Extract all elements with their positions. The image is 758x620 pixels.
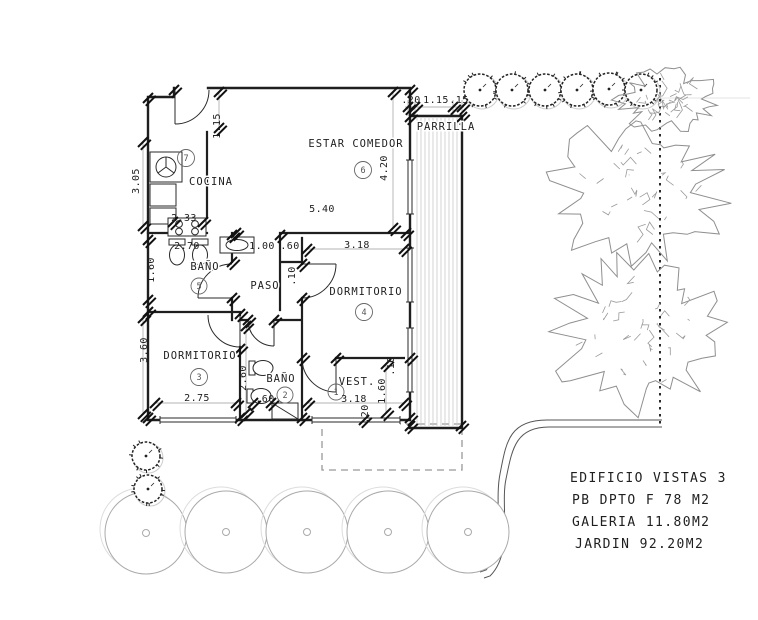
tree-canopy [347,491,429,573]
room-number-6: 6 [360,166,365,176]
shrub-spike [493,93,496,94]
shrub-spike [472,73,473,76]
shrub-spike [537,73,538,76]
room-number-5: 5 [196,282,201,292]
dim-paso-100: 1.00 [249,241,275,252]
foliage-detail [603,211,611,215]
tree-canopy [105,492,187,574]
foliage-detail [623,335,631,339]
room-number-2: 2 [282,391,287,401]
shrub-spike [157,465,159,467]
dim-top-20: .20 [401,95,420,106]
room-number-1: 1 [333,388,338,398]
dim-dorm4-width: 3.18 [344,240,370,251]
foliage-detail [637,152,642,154]
foliage-detail [621,157,637,165]
foliage-detail [614,163,620,169]
foliage-outline [549,253,728,418]
dim-dorm3-width: 2.75 [184,393,210,404]
shrub-center [479,89,482,92]
foliage-detail [613,312,625,321]
foliage-detail [675,86,681,93]
shrub-spike [131,485,134,486]
shrub-spike [584,104,585,107]
foliage-detail [688,319,690,321]
foliage-detail [666,176,673,186]
shrub-center [511,89,514,92]
shrub-spike [580,71,581,74]
foliage-detail [676,333,685,339]
foliage-detail [680,83,692,95]
foliage-detail [652,109,659,121]
dim-bano5-height: 1.60 [146,257,157,283]
foliage-detail [648,110,652,120]
shrub-spike [616,103,617,106]
foliage-detail [622,292,632,301]
dim-cocina-opening: 1.15 [212,113,223,139]
tree-canopy [185,491,267,573]
foliage-detail [625,149,629,155]
room-label-estar: ESTAR COMEDOR [308,138,403,150]
room-label-bano5: BAÑO [190,260,219,273]
window-mask [405,160,415,214]
dim-dorm3-height: 3.60 [139,337,150,363]
shrub-center [147,488,150,491]
foliage-detail [626,170,634,178]
foliage-detail [657,324,669,337]
foliage-detail [597,179,604,184]
dim-paso-10: .10 [287,266,298,285]
dim-bano2-height: 2.60 [238,365,249,391]
shrub-spike [652,102,654,104]
window-mask [160,415,236,425]
dim-top-15: .15 [449,95,468,106]
title-line-1: EDIFICIO VISTAS 3 [570,471,727,486]
foliage-detail [576,342,583,345]
dim-bano2-60: .60 [255,394,274,405]
dimension-ticks [138,85,470,434]
shrub-center [145,455,148,458]
title-line-3: GALERIA 11.80M2 [572,515,710,530]
room-label-cocina: COCINA [189,176,233,188]
foliage-detail [609,301,622,307]
dim-vest-width: 3.18 [341,394,367,405]
tree-canopy [427,491,509,573]
foliage-detail [646,222,654,235]
room-label-bano2: BAÑO [266,372,295,385]
foliage-detail [661,311,670,317]
room-number-7: 7 [183,154,188,164]
foliage-outline [546,121,731,266]
shrub-spike [131,491,134,492]
foliage-detail [664,217,666,220]
foliage-detail [640,193,650,205]
foliage-detail [665,112,670,116]
title-line-4: JARDIN 92.20M2 [575,537,704,552]
dim-vest-height: 1.60 [377,378,388,404]
foliage-detail [580,174,586,179]
foliage-detail [618,145,622,152]
shrub-spike [523,101,525,103]
dim-cocina-width: 2.33 [171,213,197,224]
foliage-detail [628,276,635,284]
shrub-spike [564,77,566,79]
foliage-detail [661,173,665,176]
foliage-detail [642,325,649,330]
shrub-spike [133,445,135,447]
foliage-detail [696,185,702,191]
foliage-detail [652,192,657,198]
kitchen-cabinet [150,184,176,206]
shrub-spike [559,99,562,101]
dim-estar-width: 5.40 [309,204,335,215]
foliage-detail [641,319,643,329]
floor-plan-canvas: COCINA ESTAR COMEDOR BAÑO PASO DORMITORI… [0,0,758,620]
room-labels: COCINA ESTAR COMEDOR BAÑO PASO DORMITORI… [163,121,475,388]
foliage-detail [670,94,677,97]
floor-plan-page: COCINA ESTAR COMEDOR BAÑO PASO DORMITORI… [0,0,758,620]
shrub-spike [553,104,554,107]
foliage-detail [643,361,646,366]
room-label-parrilla: PARRILLA [417,121,476,133]
foliage-detail [687,77,698,89]
foliage-detail [681,190,687,199]
dim-bano5-width: 2.70 [174,241,200,252]
shrub-spike [599,73,601,76]
foliage-detail [658,327,664,331]
foliage-detail [637,224,646,242]
tree-canopy [266,491,348,573]
galeria-dashed-outline [322,424,462,470]
window-mask [405,248,415,302]
foliage-detail [644,211,659,220]
dim-paso-60: .60 [280,241,299,252]
shrub-spike [648,73,649,76]
shrub-spike [463,81,466,82]
dim-cocina-height: 3.05 [131,168,142,194]
shrub-center [608,88,611,91]
foliage-detail [611,204,617,207]
vanity-basin [226,240,248,251]
shrub-spike [605,105,606,108]
room-number-4: 4 [361,308,366,318]
title-line-2: PB DPTO F 78 M2 [572,493,710,508]
room-label-paso: PASO [250,280,279,292]
title-block: EDIFICIO VISTAS 3 PB DPTO F 78 M2 GALERI… [570,471,727,552]
room-number-3: 3 [196,373,201,383]
foliage-detail [596,353,603,357]
foliage-detail [655,302,660,309]
shrub-center [640,89,643,92]
foliage-detail [627,197,632,200]
shrub-spike [515,71,516,74]
shrub-spike [140,474,141,477]
foliage-detail [662,380,667,383]
room-label-vest: VEST. [339,376,376,388]
dim-vest-20: .20 [360,404,371,423]
shrub-spike [553,74,555,77]
foliage-detail [648,330,654,347]
shrub-spike [139,441,140,444]
foliage-detail [668,348,670,356]
foliage-detail [603,306,606,313]
foliage-detail [645,148,652,154]
dim-top-115: 1.15 [423,95,449,106]
shrub-center [576,89,579,92]
room-label-dorm4: DORMITORIO [329,286,402,298]
shrub-spike [136,477,138,479]
foliage-detail [603,313,608,320]
stove-burner [176,228,183,235]
parrilla-deck-hatch [417,118,457,426]
foliage-detail [684,104,693,111]
stove-burner [192,228,199,235]
room-label-dorm3: DORMITORIO [163,350,236,362]
foliage-detail [621,369,626,375]
shrub-spike [468,75,470,77]
dim-vest-10: .10 [386,356,397,375]
dim-estar-height: 4.20 [379,155,390,181]
shrub-center [544,89,547,92]
foliage-detail [634,334,640,341]
